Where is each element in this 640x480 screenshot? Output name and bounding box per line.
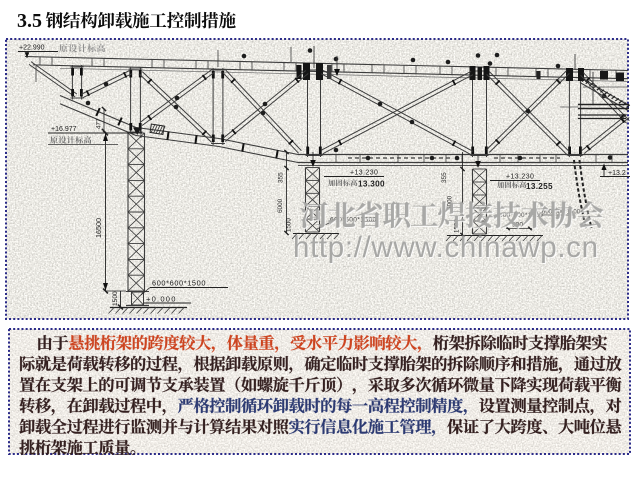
svg-text:+0.000: +0.000 <box>146 295 177 304</box>
svg-text:6000: 6000 <box>277 198 284 213</box>
svg-text:16500: 16500 <box>94 218 103 238</box>
svg-text:355: 355 <box>441 172 448 183</box>
svg-text:600*600*1500: 600*600*1500 <box>152 279 206 288</box>
svg-text:+13.230: +13.230 <box>350 170 378 177</box>
svg-text:+22.990: +22.990 <box>19 45 45 52</box>
svg-text:1500: 1500 <box>112 291 119 306</box>
svg-text:+16.977: +16.977 <box>51 126 77 133</box>
svg-text:13.255: 13.255 <box>526 182 553 191</box>
svg-text:http://www.chinawp.cn: http://www.chinawp.cn <box>293 231 598 264</box>
svg-text:+13.2: +13.2 <box>608 170 626 177</box>
svg-text:355: 355 <box>278 172 285 183</box>
svg-text:1500: 1500 <box>286 218 293 232</box>
svg-text:3.5: 3.5 <box>17 10 42 32</box>
svg-text:477: 477 <box>96 118 103 129</box>
svg-text:+13.230: +13.230 <box>506 174 534 181</box>
svg-text:13.300: 13.300 <box>358 180 385 189</box>
